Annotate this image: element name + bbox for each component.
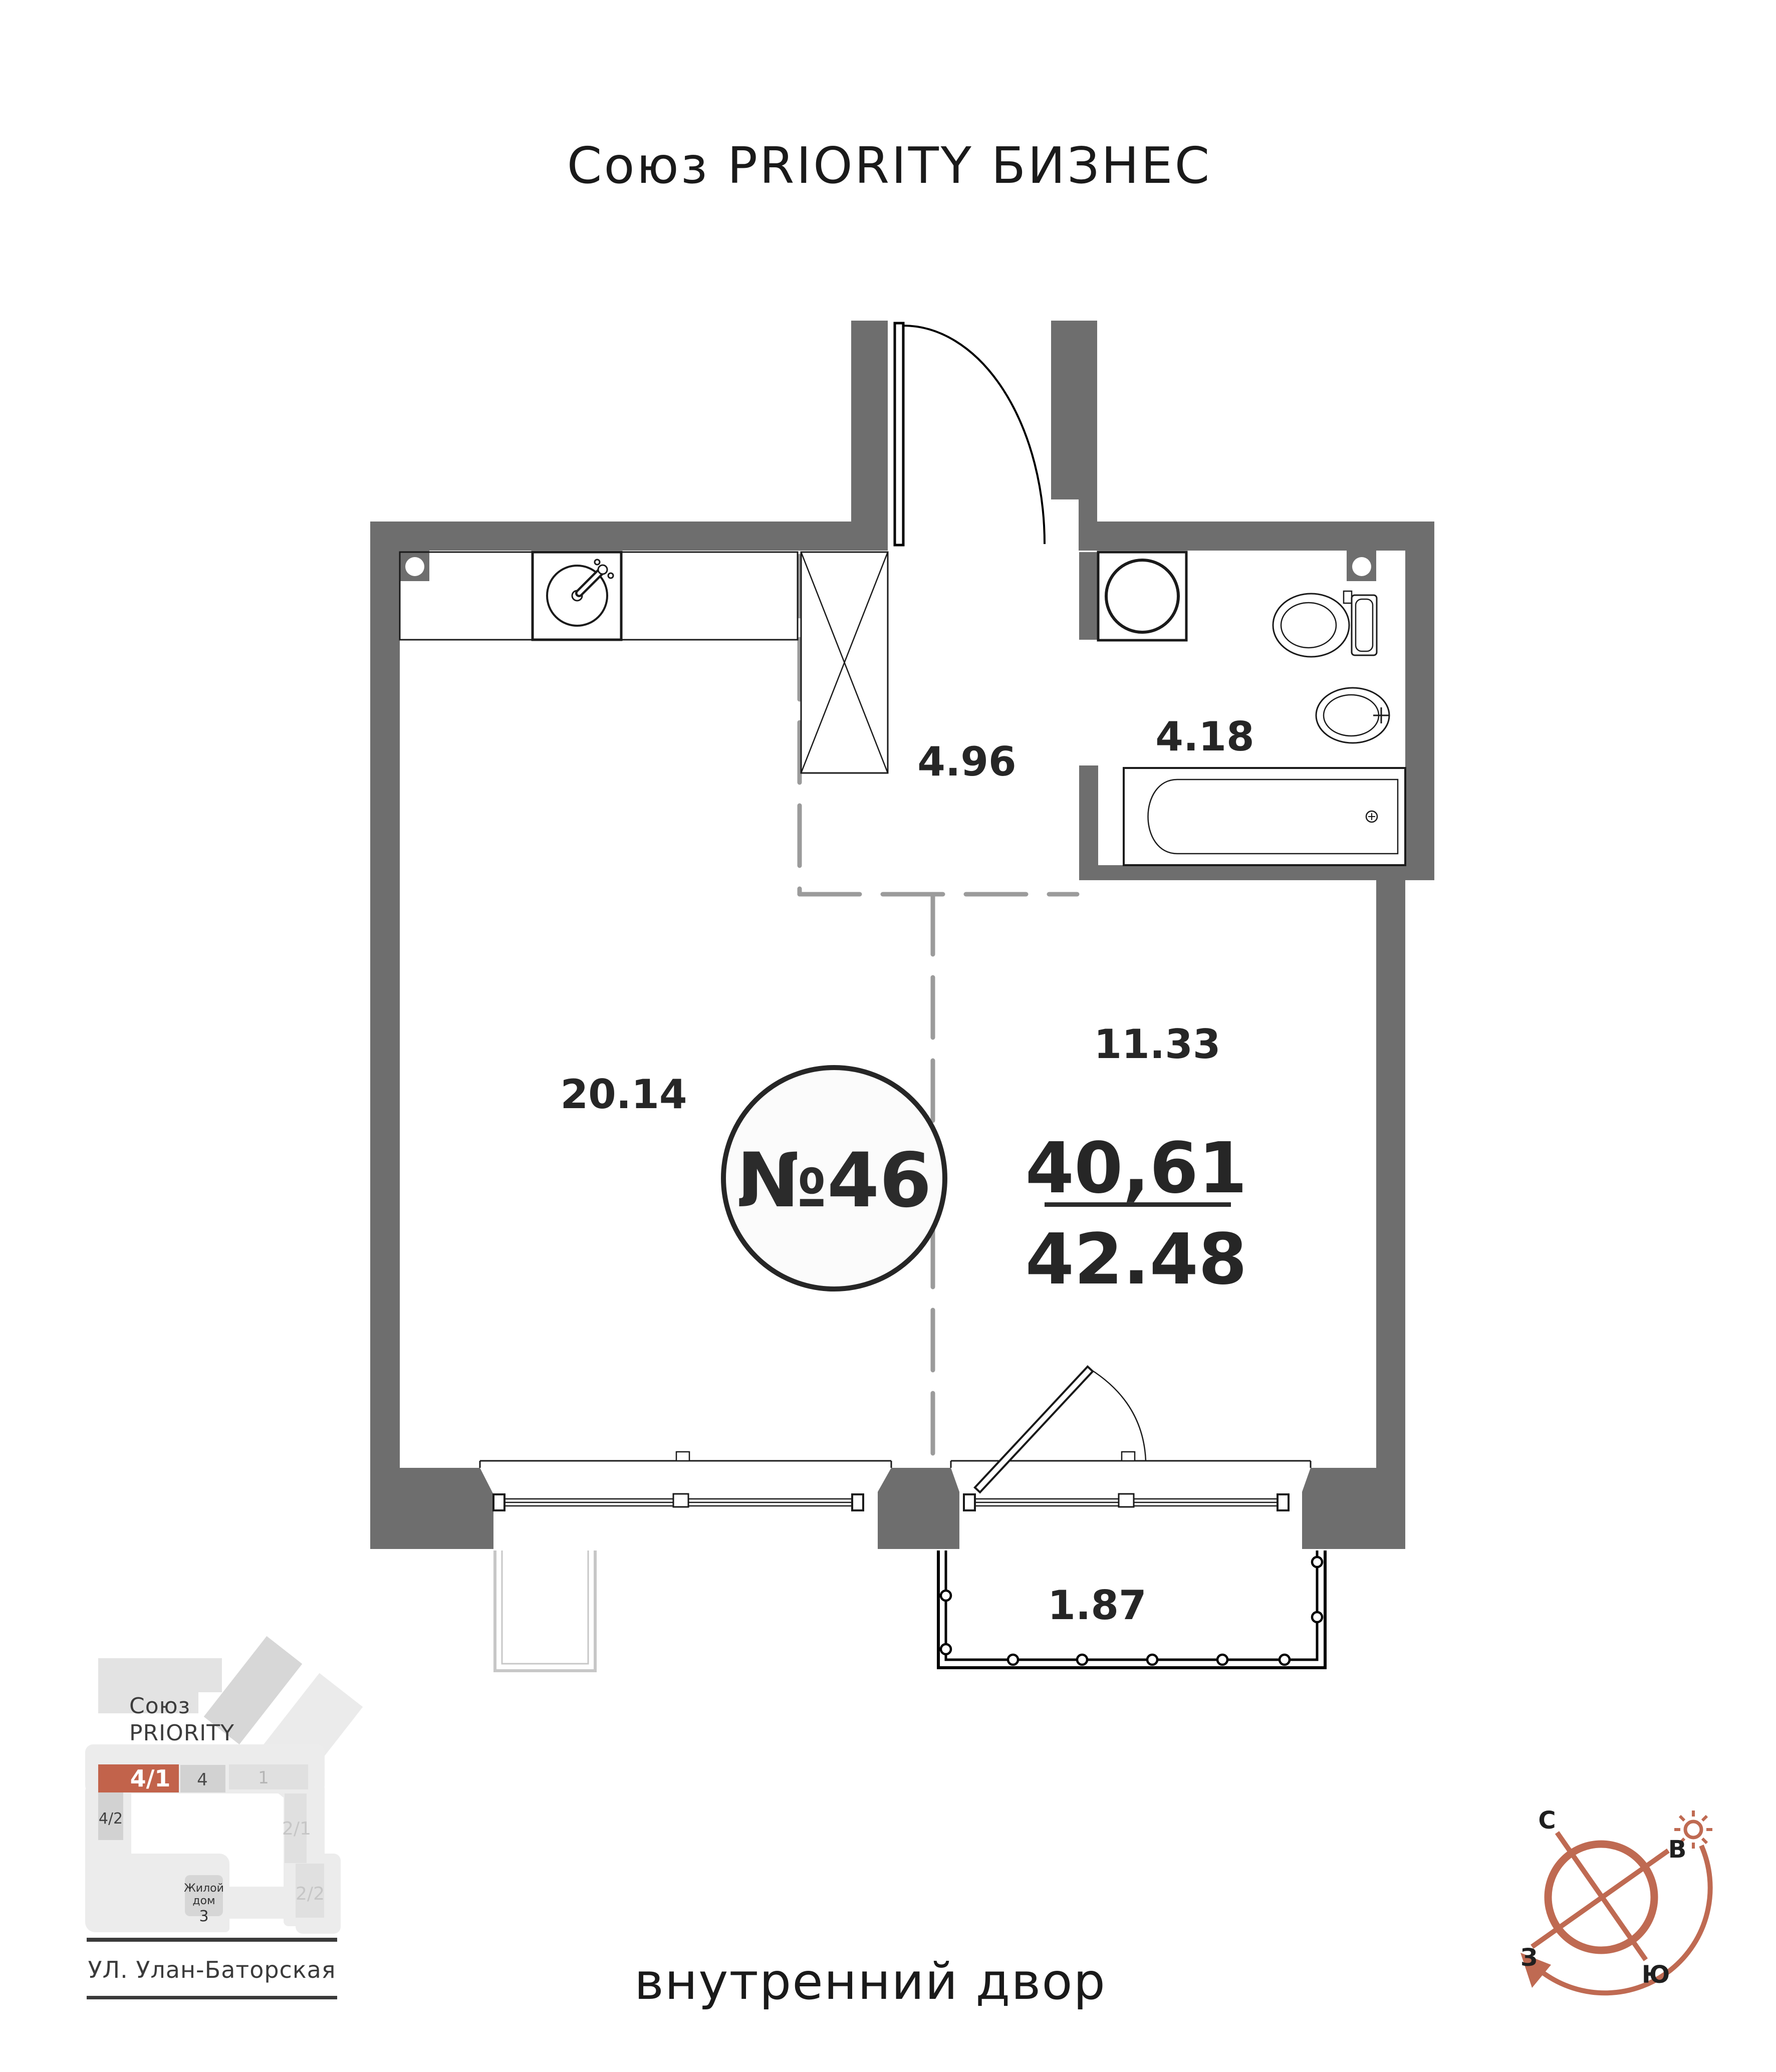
area-fraction-line bbox=[1045, 1202, 1231, 1207]
bottom-wall-pier bbox=[878, 1468, 959, 1549]
toilet-icon bbox=[1273, 591, 1377, 657]
room-label-bathroom: 4.18 bbox=[1155, 713, 1254, 760]
entry-jamb-left bbox=[851, 321, 888, 551]
door-swing-arc bbox=[903, 326, 1045, 544]
area-living: 40,61 bbox=[1026, 1128, 1247, 1209]
courtyard-label: внутренний двор bbox=[634, 1952, 1106, 2011]
minimap-label-4-2: 4/2 bbox=[99, 1810, 123, 1828]
neighbor-balcony bbox=[495, 1550, 595, 1671]
compass-east: В bbox=[1668, 1836, 1687, 1864]
bottom-wall-right bbox=[1302, 1468, 1405, 1549]
minimap-label-4: 4 bbox=[197, 1770, 208, 1790]
room-label-kitchen: 11.33 bbox=[1094, 1021, 1220, 1068]
bottom-wall-left bbox=[370, 1468, 493, 1549]
bathroom-sink-icon bbox=[1316, 688, 1389, 743]
room-label-hallway: 4.96 bbox=[917, 738, 1016, 785]
kitchen-faucet-icon bbox=[579, 560, 613, 593]
minimap-house-number: 3 bbox=[199, 1908, 208, 1925]
bathtub-icon bbox=[1124, 768, 1405, 865]
washing-machine-icon bbox=[1098, 552, 1186, 640]
wall-right-upper bbox=[1405, 551, 1434, 880]
column-mark-right bbox=[1352, 557, 1371, 576]
minimap-label-2-1: 2/1 bbox=[282, 1819, 311, 1839]
minimap-street-rule-top bbox=[87, 1938, 337, 1942]
wardrobe bbox=[801, 552, 888, 773]
floor-plan-canvas: Союз PRIORITY БИЗНЕС bbox=[0, 0, 1776, 2072]
door-leaf bbox=[895, 323, 903, 545]
room-label-balcony: 1.87 bbox=[1048, 1582, 1146, 1629]
area-total: 42.48 bbox=[1026, 1219, 1247, 1301]
entry-jamb-right bbox=[1051, 321, 1097, 499]
minimap-label-1: 1 bbox=[258, 1768, 269, 1788]
kitchen-counter bbox=[400, 552, 798, 640]
minimap-project-line1: Союз bbox=[129, 1693, 190, 1719]
entry-door bbox=[895, 323, 1045, 545]
compass-west: З bbox=[1520, 1944, 1538, 1972]
room-label-living: 20.14 bbox=[560, 1071, 687, 1118]
minimap-house-line1: Жилой bbox=[184, 1882, 224, 1895]
compass-north: С bbox=[1538, 1806, 1556, 1835]
bath-wall-lower bbox=[1079, 765, 1098, 865]
minimap-label-2-2: 2/2 bbox=[296, 1884, 325, 1904]
wall-right-lower bbox=[1376, 880, 1405, 1468]
minimap-street-rule-bottom bbox=[87, 1996, 337, 1999]
open-window-sash bbox=[975, 1367, 1146, 1492]
minimap-project-line2: PRIORITY bbox=[129, 1720, 234, 1746]
minimap-street: УЛ. Улан-Баторская bbox=[88, 1956, 336, 1983]
compass-south: Ю bbox=[1642, 1961, 1670, 1989]
minimap-label-4-1: 4/1 bbox=[130, 1765, 171, 1792]
minimap: Союз PRIORITY 4/1 4 1 4/2 2/1 2/2 Жилой … bbox=[85, 1636, 363, 1999]
column-mark-left bbox=[405, 557, 424, 576]
floorplan-page: { "title": "Союз PRIORITY БИЗНЕС", "plan… bbox=[0, 0, 1776, 2072]
page-title: Союз PRIORITY БИЗНЕС bbox=[567, 136, 1212, 195]
bath-wall-upper bbox=[1079, 552, 1098, 640]
minimap-house-line2: дом bbox=[192, 1895, 215, 1907]
bath-wall-bottom bbox=[1079, 865, 1434, 880]
wall-left bbox=[370, 551, 400, 1468]
unit-number: №46 bbox=[736, 1137, 931, 1224]
